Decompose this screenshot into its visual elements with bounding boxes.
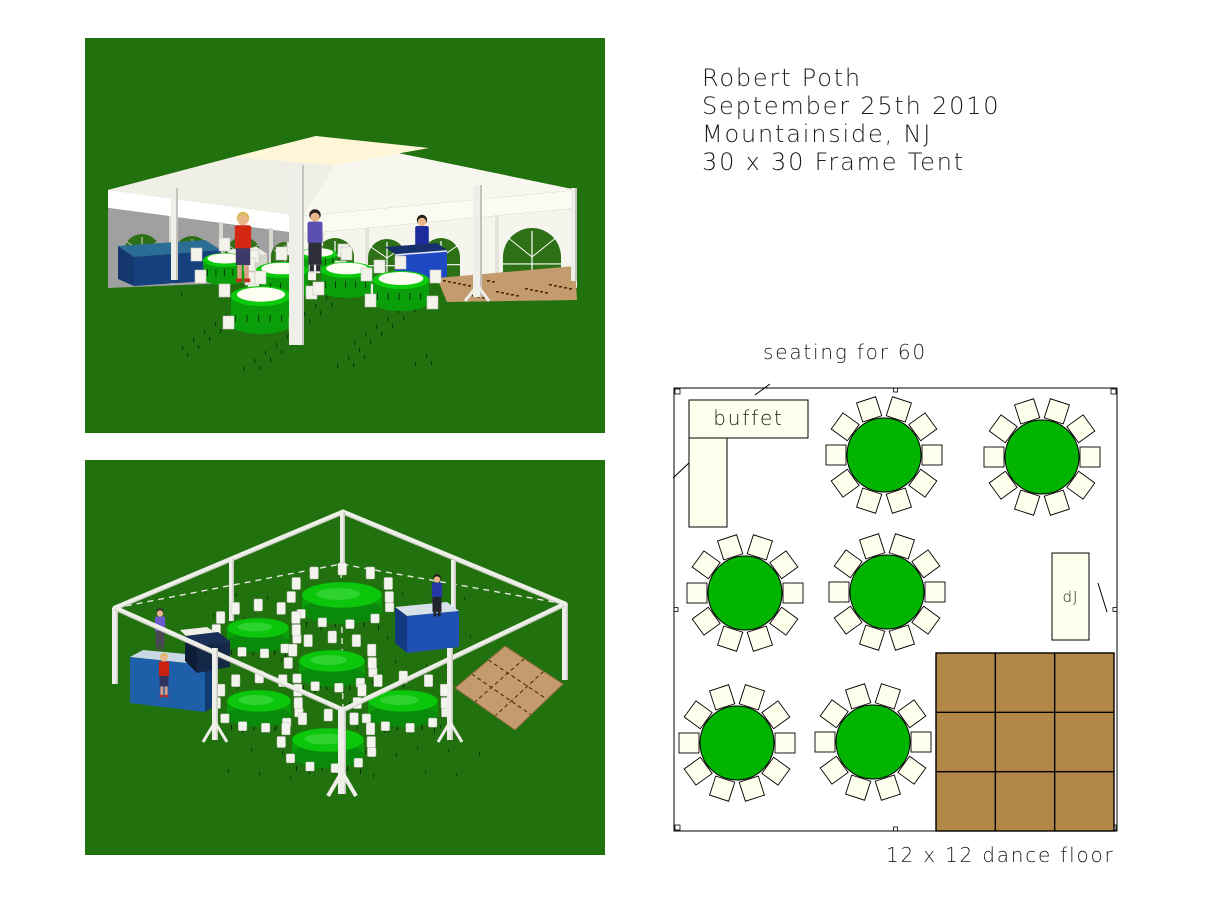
tent-pole [289,165,304,345]
chair [922,445,942,465]
mid-pole-mark [1113,608,1117,612]
chair [362,714,371,723]
mid-pole-mark [674,608,678,612]
chair [424,675,433,687]
chair [395,256,406,269]
round-table-group [826,397,942,514]
chair [925,582,945,602]
chair [313,282,324,295]
chair [350,713,359,725]
round-table [1005,420,1079,494]
chair [231,602,240,614]
chair [286,754,295,763]
chair [231,675,240,687]
dj-label: dJ [1052,553,1089,640]
chair [293,674,302,683]
seating-capacity-label: seating for 60 [763,340,927,364]
dance-floor [936,653,1114,831]
event-location: Mountainside, NJ [702,120,1000,148]
chair [783,583,803,603]
buffet-table [689,438,727,527]
chair [687,583,707,603]
chair [367,644,376,656]
chair [310,567,319,579]
chair [281,644,290,653]
mid-pole-mark [894,388,898,392]
chair [361,268,372,281]
round-table [700,706,774,780]
chair [223,316,234,329]
round-table [708,556,782,630]
event-date: September 25th 2010 [702,92,1000,120]
chair [371,614,380,623]
chair [385,592,394,603]
chair [219,238,230,251]
round-table-group [984,399,1100,516]
round-table [836,705,910,779]
client-name: Robert Poth [702,64,1000,92]
event-info: Robert Poth September 25th 2010 Mountain… [702,64,1000,176]
chair [829,582,849,602]
chair [284,658,293,669]
chair [294,698,303,709]
chair [298,713,307,725]
chair [219,284,230,297]
corner-mark [675,389,680,394]
tent-description: 30 x 30 Frame Tent [702,148,1000,176]
chair [679,733,699,753]
buffet-label: buffet [689,398,808,438]
chair [261,723,270,732]
round-table-group [687,535,803,652]
chair [216,612,225,624]
chair [328,631,337,643]
chair [318,618,327,627]
chair [195,270,206,283]
chair [430,270,441,283]
chair [304,635,313,647]
corner-mark [675,825,680,830]
chair [427,296,438,309]
chair [368,658,377,669]
corner-mark [1111,389,1116,394]
chair [238,722,247,731]
chair [358,684,367,696]
frame-wireframe-scene [85,460,605,855]
chair [385,603,394,612]
chair [374,260,385,273]
chair [1080,447,1100,467]
chair [254,599,263,611]
chair [335,683,344,692]
chair [406,723,415,732]
guy-line-mark [673,462,690,478]
render-3d-frame-view [85,460,605,855]
guy-line-mark [1098,583,1107,612]
chair [374,675,383,687]
chair [276,247,287,260]
chair [338,563,347,575]
round-table-group [829,534,945,651]
chair [292,625,301,636]
chair [341,247,352,260]
round-table [847,418,921,492]
chair [287,592,296,603]
chair [381,722,390,731]
round-table-group [679,685,795,802]
chair [306,762,315,771]
chair [255,271,266,284]
chair [367,748,376,757]
chair [292,577,301,589]
covered-tent-scene [85,38,605,433]
guy-line-mark [755,384,770,395]
chair [365,294,376,307]
chair [366,723,375,735]
chair [366,567,375,579]
round-table [850,555,924,629]
chair [346,620,355,629]
chair [354,758,363,767]
render-3d-covered-tent [85,38,605,433]
chair [282,723,291,735]
chair [352,635,361,647]
chair [324,709,333,721]
floor-plan: buffet dJ [668,382,1124,838]
chair [221,714,230,723]
chair [984,447,1004,467]
chair [191,248,202,261]
chair [815,732,835,752]
design-sheet: Robert Poth September 25th 2010 Mountain… [0,0,1207,912]
chair [826,445,846,465]
chair [277,737,286,748]
chair [775,733,795,753]
mid-pole-mark [894,827,898,831]
chair [292,612,301,624]
chair [367,737,376,748]
chair [238,647,247,656]
chair [911,732,931,752]
chair [311,682,320,691]
chair [384,577,393,589]
dance-floor-caption: 12 x 12 dance floor [886,843,1115,867]
chair [260,649,269,658]
chair [428,718,437,727]
chair [289,644,298,656]
chair [277,602,286,614]
round-table-group [815,684,931,801]
